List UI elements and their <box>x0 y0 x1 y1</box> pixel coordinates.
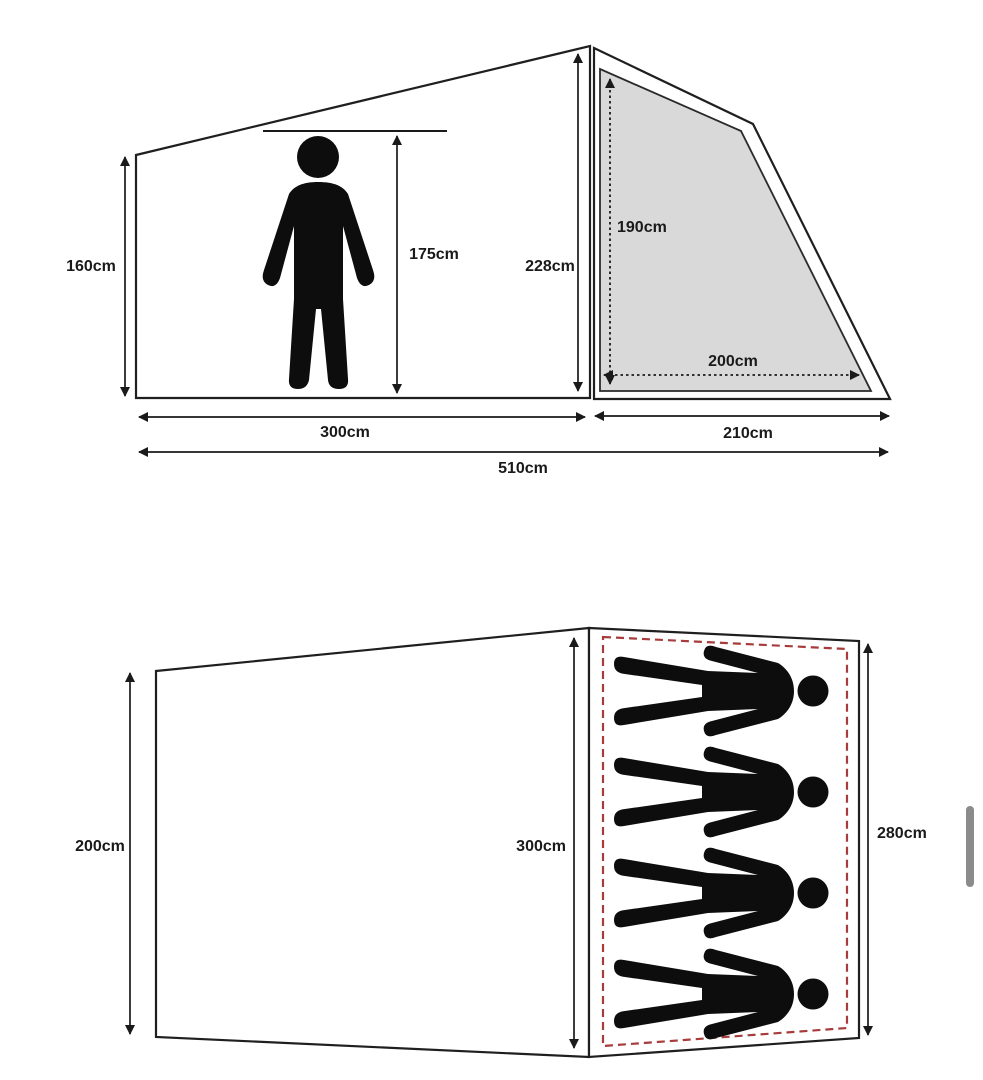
label-door-width: 200cm <box>708 353 758 370</box>
tent-cabin-outline <box>136 46 590 398</box>
label-door-height: 190cm <box>617 219 667 236</box>
label-porch-length: 210cm <box>723 425 773 442</box>
label-peak-height: 228cm <box>525 258 575 275</box>
scrollbar-thumb[interactable] <box>966 806 974 887</box>
label-total-length: 510cm <box>498 460 548 477</box>
label-sleeping-area-width: 280cm <box>877 825 927 842</box>
label-cabin-length: 300cm <box>320 424 370 441</box>
dim-left-wall-height: 160cm <box>66 157 125 396</box>
dim-total-length: 510cm <box>139 452 888 477</box>
dim-porch-length: 210cm <box>595 416 889 442</box>
label-rear-width: 200cm <box>75 838 125 855</box>
tent-diagram-canvas: 160cm 175cm 228cm 190cm 200cm 300cm <box>0 0 983 1080</box>
label-left-wall-height: 160cm <box>66 258 116 275</box>
side-view-diagram: 160cm 175cm 228cm 190cm 200cm 300cm <box>66 46 890 477</box>
dim-rear-width: 200cm <box>75 673 130 1034</box>
floor-plan-diagram: 200cm 300cm 280cm <box>75 628 927 1057</box>
tent-dimensions-image: 160cm 175cm 228cm 190cm 200cm 300cm <box>0 0 983 1080</box>
label-cabin-width: 300cm <box>516 838 566 855</box>
dim-sleeping-area-width: 280cm <box>868 644 927 1035</box>
dim-cabin-length: 300cm <box>139 417 585 441</box>
label-person-height: 175cm <box>409 246 459 263</box>
